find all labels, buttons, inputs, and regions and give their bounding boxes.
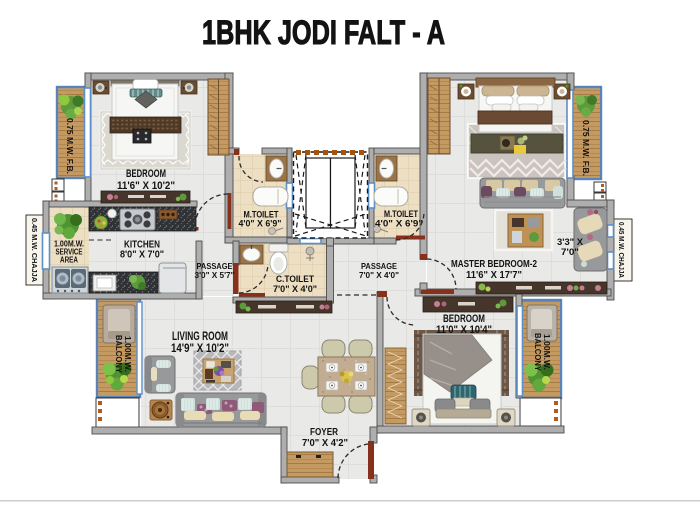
svg-text:7'0": 7'0" (561, 247, 579, 258)
svg-text:7'0" X 4'0": 7'0" X 4'0" (273, 284, 317, 295)
svg-text:0.45 M.W. CHAJJA: 0.45 M.W. CHAJJA (30, 218, 39, 283)
svg-text:7'0" X 4'2": 7'0" X 4'2" (302, 437, 348, 449)
svg-text:1.00M.W.: 1.00M.W. (542, 334, 551, 370)
svg-text:8'0" X 7'0": 8'0" X 7'0" (120, 250, 164, 261)
svg-text:0.45 M.W. CHAJJA: 0.45 M.W. CHAJJA (617, 222, 626, 278)
svg-text:BALCONY: BALCONY (114, 335, 123, 374)
svg-text:0.75 M.W. F.B.: 0.75 M.W. F.B. (65, 118, 75, 174)
svg-text:1.00M.W.: 1.00M.W. (123, 336, 132, 372)
svg-text:BALCONY: BALCONY (533, 333, 542, 372)
svg-text:7'0" X 4'0": 7'0" X 4'0" (359, 270, 399, 280)
svg-text:LIVING ROOM: LIVING ROOM (172, 331, 228, 343)
svg-text:4'0" X 6'9": 4'0" X 6'9" (239, 219, 282, 230)
svg-text:11'6" X 10'2": 11'6" X 10'2" (117, 180, 175, 192)
svg-text:AREA: AREA (60, 256, 78, 265)
svg-text:0.75 M.W. F.B.: 0.75 M.W. F.B. (581, 120, 591, 176)
svg-text:14'9" X 10'2": 14'9" X 10'2" (171, 343, 229, 355)
svg-text:1BHK JODI FALT - A: 1BHK JODI FALT - A (202, 14, 445, 52)
svg-text:11'6" X 17'7": 11'6" X 17'7" (466, 269, 522, 281)
svg-text:11'0" X 10'4": 11'0" X 10'4" (436, 324, 492, 336)
svg-text:3'0" X 5'7": 3'0" X 5'7" (195, 270, 235, 280)
svg-text:BEDROOM: BEDROOM (126, 168, 166, 180)
svg-text:4'0" X 6'9": 4'0" X 6'9" (375, 219, 423, 230)
